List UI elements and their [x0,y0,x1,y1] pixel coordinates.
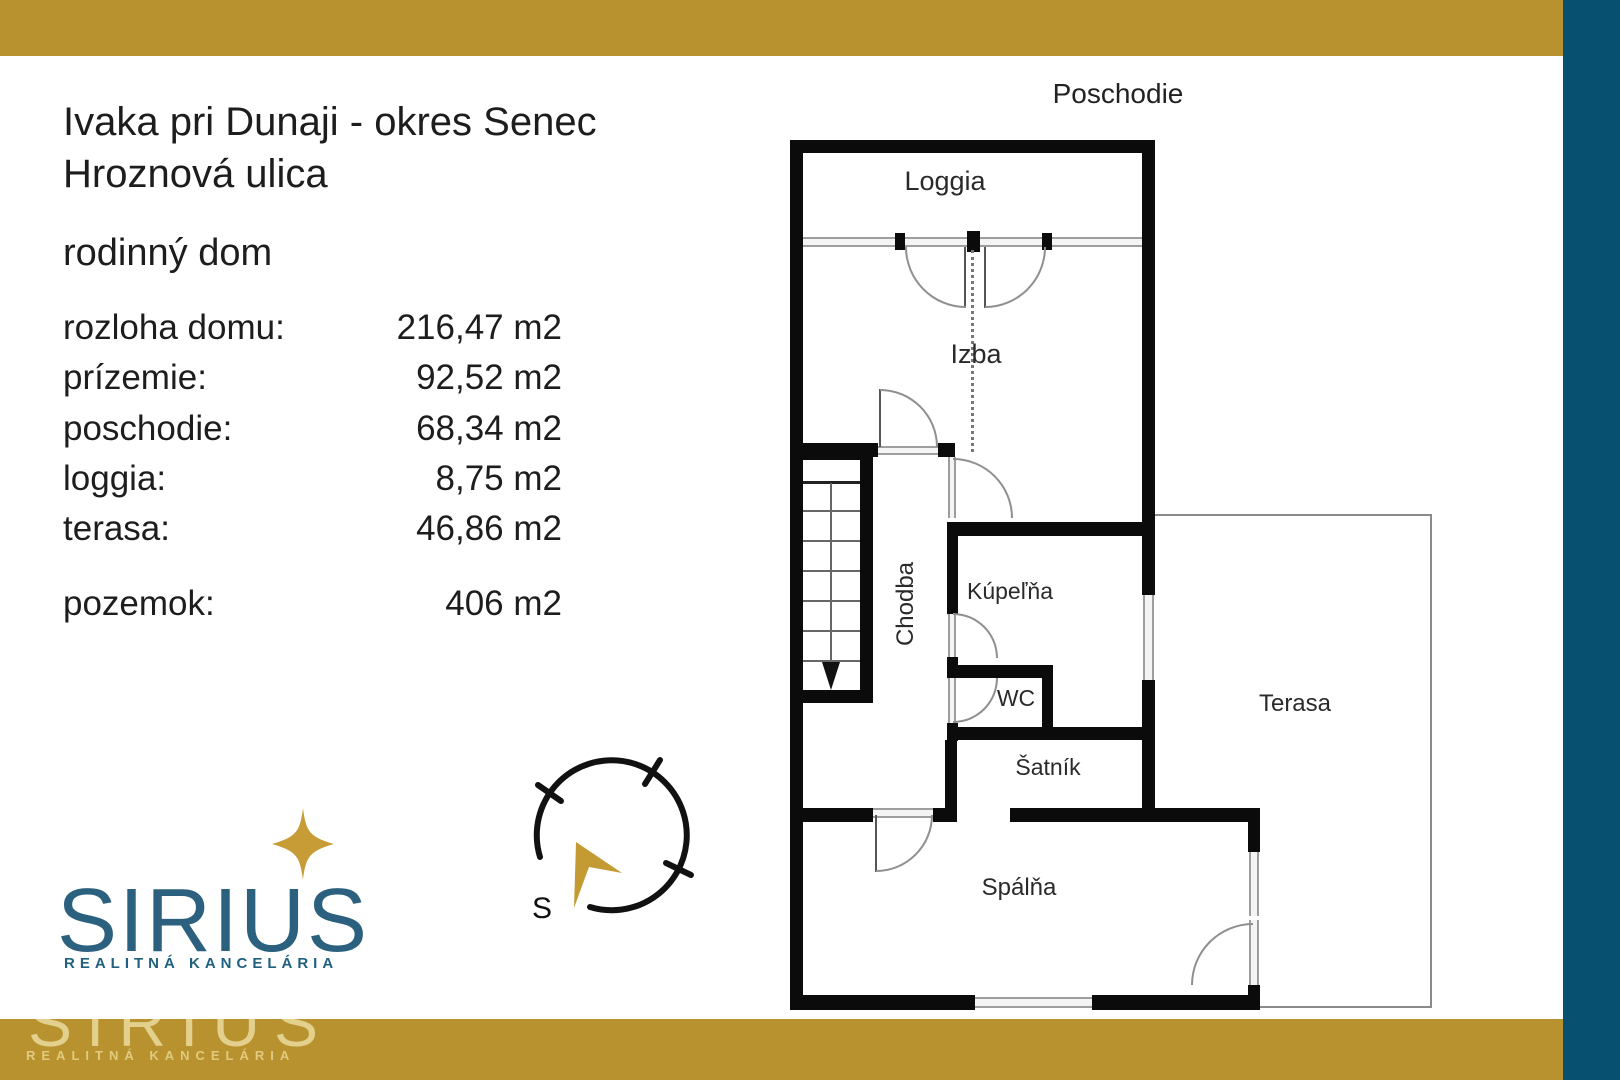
watermark-tagline: REALITNÁ KANCELÁRIA [26,1048,295,1063]
wall-segment [797,808,873,822]
detail-row: rozloha domu: 216,47 m2 [63,308,563,352]
wall-segment [790,140,1155,153]
logo-tagline: REALITNÁ KANCELÁRIA [64,955,338,972]
detail-row: prízemie: 92,52 m2 [63,358,563,402]
room-label-satnik: Šatník [968,754,1128,781]
detail-row: loggia: 8,75 m2 [63,459,563,503]
detail-value: 8,75 m2 [280,459,562,499]
bottom-gold-bar: SIRIUS REALITNÁ KANCELÁRIA [0,1019,1563,1080]
wall-segment [1010,808,1260,822]
stair-wall [860,447,873,703]
wall-segment [938,443,955,457]
property-type: rodinný dom [63,232,563,275]
door-swing-arc [985,247,1046,308]
wall-segment [1092,995,1260,1010]
room-label-terasa: Terasa [1215,690,1375,718]
detail-row-pozemok: pozemok: 406 m2 [63,584,563,628]
bathroom-window [1143,595,1154,680]
wall-segment [947,665,1053,678]
wall-segment [1142,680,1155,808]
room-label-loggia: Loggia [865,166,1025,197]
detail-value: 216,47 m2 [280,308,562,348]
detail-row: poschodie: 68,34 m2 [63,409,563,453]
detail-value: 46,86 m2 [280,509,562,549]
location-line-2: Hroznová ulica [63,152,763,197]
detail-value: 406 m2 [280,584,562,624]
detail-label: loggia: [63,459,166,499]
door-swing-arc [905,247,966,308]
wall-segment [933,808,957,822]
terrace-outline [1150,514,1432,1008]
detail-label: prízemie: [63,358,207,398]
compass-south-label: S [532,892,552,926]
stair-center-line [830,483,832,665]
location-line-1: Ivaka pri Dunaji - okres Senec [63,100,763,145]
detail-value: 92,52 m2 [280,358,562,398]
door-swing-arc [880,389,938,447]
floorplan-title: Poschodie [1038,78,1198,110]
detail-value: 68,34 m2 [280,409,562,449]
detail-label: pozemok: [63,584,215,624]
detail-label: rozloha domu: [63,308,285,348]
wall-segment [790,140,803,1010]
window-mullion [967,231,980,252]
room-label-kupelna: Kúpeľňa [930,578,1090,605]
door-threshold [878,446,938,455]
wall-segment [790,995,975,1010]
right-teal-bar [1563,0,1620,1080]
stair-direction-arrow [822,662,840,690]
detail-label: poschodie: [63,409,232,449]
bedroom-window [975,997,1092,1008]
wall-segment [947,522,1155,536]
window-mullion [895,233,905,250]
terrace-door-glass [1249,852,1259,916]
door-swing-arc [876,815,933,872]
top-gold-bar [0,0,1563,56]
wall-segment [947,727,1155,740]
flyer-canvas: SIRIUS REALITNÁ KANCELÁRIA Ivaka pri Dun… [0,0,1620,1080]
detail-row: terasa: 46,86 m2 [63,509,563,553]
room-label-wc: WC [936,685,1096,712]
room-label-spalna: Spálňa [939,874,1099,902]
wall-segment [945,740,957,810]
door-swing-arc [953,613,998,658]
stair-wall [795,690,873,703]
door-swing-arc [953,458,1013,518]
detail-label: terasa: [63,509,170,549]
wall-segment [1248,808,1260,852]
room-label-izba: Izba [896,339,1056,370]
room-label-chodba: Chodba [892,524,920,684]
